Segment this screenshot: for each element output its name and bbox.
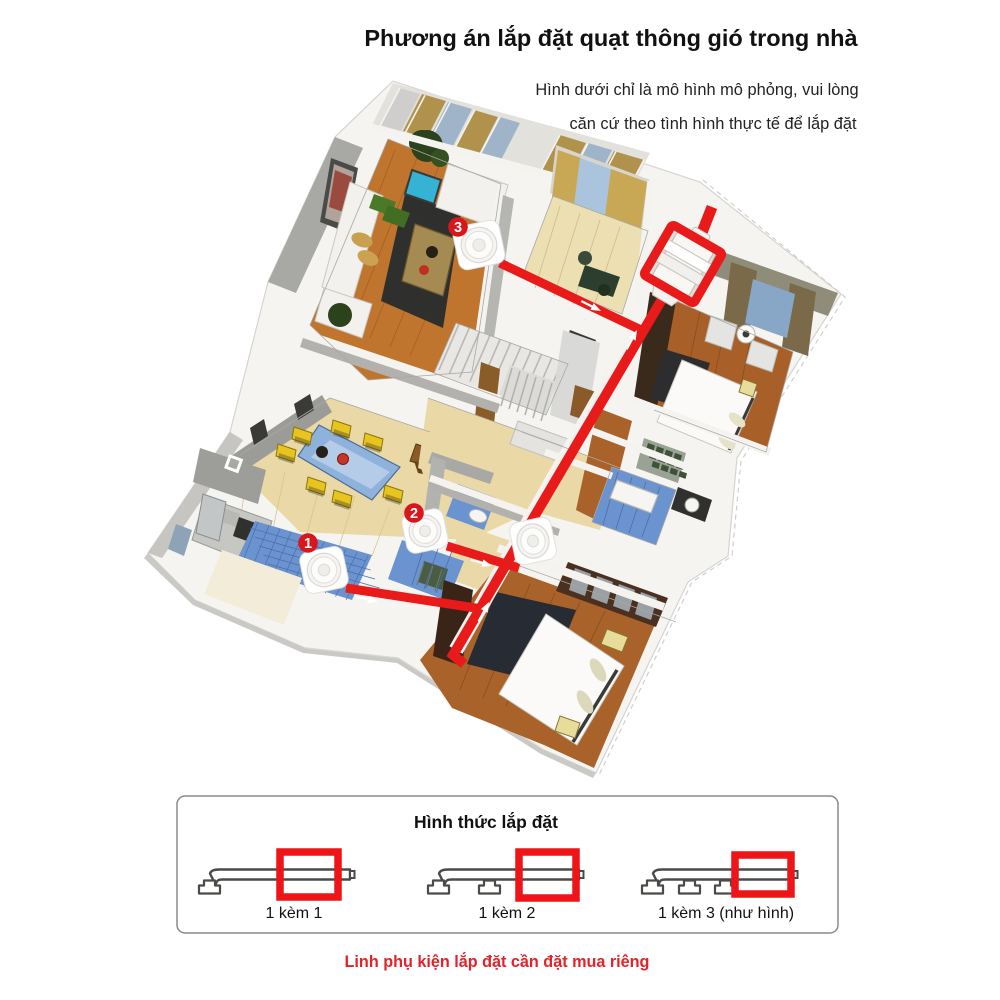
svg-text:1 kèm 3 (như hình): 1 kèm 3 (như hình) [658, 905, 794, 922]
svg-text:3: 3 [454, 220, 462, 236]
svg-text:Phương án lắp đặt quạt thông g: Phương án lắp đặt quạt thông gió trong n… [364, 24, 858, 51]
svg-text:1 kèm 1: 1 kèm 1 [266, 905, 323, 922]
svg-text:Linh phụ kiện lắp đặt cần đặt: Linh phụ kiện lắp đặt cần đặt mua riêng [345, 952, 650, 971]
svg-text:Hình dưới chỉ là mô hình mô ph: Hình dưới chỉ là mô hình mô phỏng, vui l… [535, 81, 858, 99]
svg-text:Hình thức lắp đặt: Hình thức lắp đặt [414, 811, 558, 832]
svg-text:2: 2 [410, 506, 418, 522]
svg-text:1: 1 [304, 536, 312, 552]
svg-text:1 kèm 2: 1 kèm 2 [479, 905, 536, 922]
svg-text:căn cứ theo tình hình thực tế: căn cứ theo tình hình thực tế để lắp đặt [569, 114, 857, 133]
